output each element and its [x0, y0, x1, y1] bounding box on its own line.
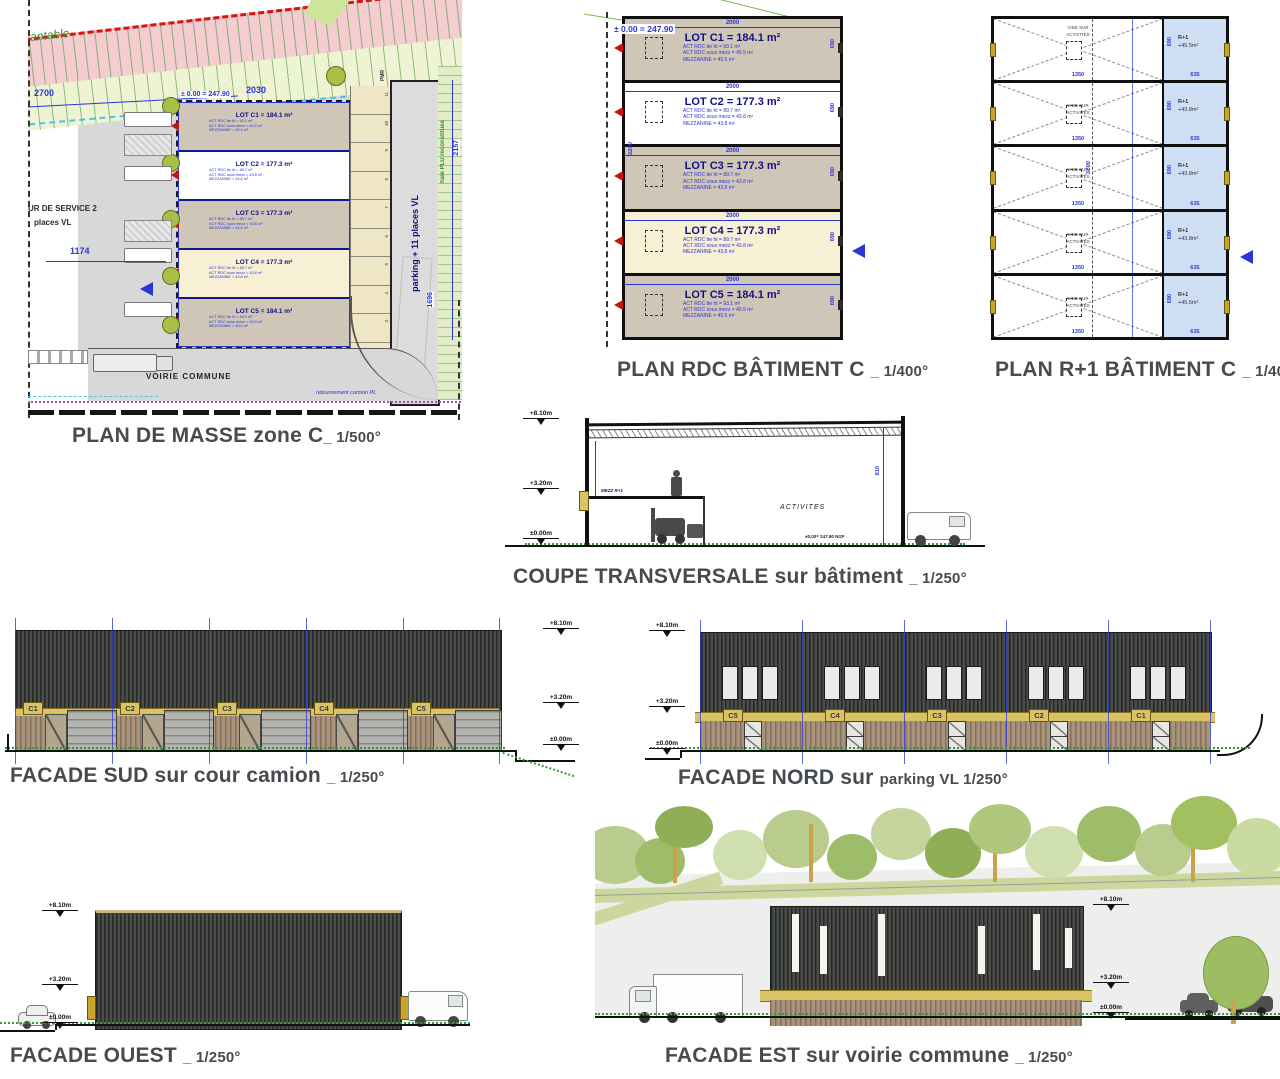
tree-icon: [827, 834, 877, 880]
unit-label: C4: [314, 702, 334, 715]
window-pane: [742, 666, 758, 700]
mezzanine-zone: 690 R+1 +45.5m² 635: [1162, 19, 1226, 80]
r1-tag: R+1: [1178, 292, 1188, 298]
facade-ouest-panel: +8.10m +3.20m ±0.00m: [0, 878, 480, 1058]
level-label: ±0.00m: [656, 740, 678, 747]
void-label1: VIDE SUR: [994, 232, 1162, 237]
window-slot: [878, 914, 885, 976]
tree-icon: [1077, 806, 1141, 862]
window-group: [824, 666, 880, 700]
window-pane: [864, 666, 880, 700]
r1-area: +45.5m²: [1178, 43, 1198, 49]
lot-line: MEZZANINE = 43.8 m²: [209, 177, 349, 182]
door-arrow-icon: [171, 121, 179, 131]
door-mark: [1224, 300, 1230, 314]
plan-de-masse-panel: antable 2700 2030 ± 0.00 = 247.90 LOT C1…: [28, 0, 462, 420]
lot-line: MEZZANINE = 45.5 m²: [209, 128, 349, 133]
masse-lot-c4: LOT C4 = 177.3 m² ACT RDC tte ht = 89.7 …: [179, 248, 349, 297]
level-triangle-icon: [56, 985, 64, 991]
level-triangle-icon: [557, 629, 565, 635]
level-label: +3.20m: [530, 480, 552, 487]
unit-label: C1: [1131, 709, 1151, 722]
door-mark: [990, 107, 996, 121]
level-marker: ±0.00m: [543, 736, 579, 751]
dim-1174: 1174: [70, 246, 90, 256]
title-scale: _ 1/500°: [323, 429, 381, 446]
direction-arrow-icon: [852, 244, 865, 258]
lot-line: MEZZANINE = 43.8 m²: [209, 275, 349, 280]
sud-cladding: [15, 630, 502, 712]
level-label: +8.10m: [550, 620, 572, 627]
void-zone: VIDE SUR ACTIVITES 1350: [994, 19, 1162, 80]
height-dim-line: [883, 428, 884, 545]
ground-line: [5, 750, 515, 752]
title-text: FACADE SUD sur cour camion: [10, 764, 327, 787]
title-scale: parking VL 1/250°: [880, 771, 1008, 788]
title-text: PLAN R+1 BÂTIMENT C: [995, 358, 1242, 381]
stall: 10: [351, 115, 391, 144]
truck-window: [635, 990, 651, 1002]
wall-mark: [838, 43, 843, 53]
tree-icon: [326, 66, 346, 86]
title-scale: _ 1/250°: [909, 570, 967, 587]
window-pane: [1130, 666, 1146, 700]
level-triangle-icon: [56, 911, 64, 917]
tree-icon: [1227, 818, 1280, 876]
level-marker: +8.10m: [543, 620, 579, 635]
ground-green-line: [595, 1013, 1280, 1015]
opening-box: [1066, 41, 1082, 60]
van-wheel: [915, 535, 926, 546]
mezzanine-zone: 690 R+1 +43.8m² 635: [1162, 212, 1226, 273]
car-roof: [1187, 993, 1209, 1002]
stall: 7: [351, 200, 391, 229]
unit-label: C1: [23, 702, 43, 715]
void-label2: ACTIVITES: [994, 239, 1162, 244]
dim-2030: 2030: [246, 85, 266, 95]
lot-name: LOT C2 = 177.3 m²: [179, 161, 349, 168]
window-group: [926, 666, 982, 700]
wall-mark: [838, 236, 843, 246]
forklift-wheel: [657, 534, 667, 544]
mezz-label: MEZZ R+1: [601, 488, 623, 493]
mezzanine-zone: 690 R+1 +45.5m² 635: [1162, 276, 1226, 337]
utility-dotted-line: [28, 401, 462, 403]
stall: 6: [351, 229, 391, 258]
door-mark: [990, 43, 996, 57]
coupe-title: COUPE TRANSVERSALE sur bâtiment _ 1/250°: [513, 565, 967, 589]
door-swing: [645, 230, 663, 252]
window-pane: [926, 666, 942, 700]
level-triangle-icon: [537, 539, 545, 545]
hatched-stall: [124, 134, 172, 156]
level-label: +8.10m: [1100, 896, 1122, 903]
level-marker: +8.10m: [1093, 896, 1129, 911]
wall-right: [901, 416, 905, 546]
void-label2: ACTIVITES: [994, 303, 1162, 308]
person-head: [673, 470, 680, 477]
bay-height-dim: 690: [1167, 101, 1173, 110]
level-triangle-icon: [663, 749, 671, 755]
crosswalk: [28, 350, 88, 364]
level-triangle-icon: [1107, 1013, 1115, 1019]
level-marker: ±0.00m: [523, 530, 559, 545]
void-label1: VIDE SUR: [994, 103, 1162, 108]
grid-line: [209, 618, 210, 764]
level-marker: +8.10m: [42, 902, 78, 917]
service-court-label2: places VL: [34, 218, 71, 227]
rdc-lot-c5: 2000 LOT C5 = 184.1 m² ACT RDC tte ht = …: [625, 273, 840, 337]
tree-icon: [871, 808, 931, 860]
road-band: [1125, 1016, 1280, 1020]
coupe-panel: MEZZ R+1 ACTIVITES 810 ±0.00= 247.90 NGF…: [505, 396, 985, 564]
ground-curve: [1217, 714, 1263, 756]
door-swing: [645, 37, 663, 59]
level-triangle-icon: [1107, 983, 1115, 989]
stall-number: 10: [384, 121, 389, 126]
window-group: [722, 666, 778, 700]
lot-line: MEZZANINE = 43.8 m²: [209, 226, 349, 231]
grid-line: [403, 618, 404, 764]
tree-icon: [969, 804, 1031, 854]
stall: 8: [351, 172, 391, 201]
stall-number: 7: [384, 206, 389, 209]
window-slot: [820, 926, 827, 974]
direction-arrow-icon: [140, 282, 153, 296]
void-zone: VIDE SUR ACTIVITES 1350: [994, 276, 1162, 337]
grid-line: [112, 618, 113, 764]
grid-line: [904, 620, 905, 764]
level-label: +3.20m: [1100, 974, 1122, 981]
title-text: FACADE EST sur voirie commune: [665, 1044, 1015, 1067]
r1-dim: 635: [1164, 329, 1226, 335]
void-label1: VIDE SUR: [994, 25, 1162, 30]
title-scale: _ 1/400°: [871, 363, 929, 380]
level-label: +3.20m: [49, 976, 71, 983]
door-mark: [990, 236, 996, 250]
voirie-label: VOIRIE COMMUNE: [146, 372, 232, 381]
service-court-label: UR DE SERVICE 2: [28, 204, 97, 213]
door-arrow-icon: [614, 43, 623, 53]
window-group: [1028, 666, 1084, 700]
plan-rdc-panel: ± 0.00 = 247.90 3200 2000 LOT C1 = 184.1…: [598, 12, 888, 357]
ouest-cladding: [95, 910, 402, 1030]
site-boundary-right: [458, 300, 460, 420]
edge-post: [7, 734, 9, 750]
level-marker: +8.10m: [523, 410, 559, 425]
r1-dim: 635: [1164, 201, 1226, 207]
door-swing: [645, 294, 663, 316]
dim-2157: 2157: [453, 140, 460, 156]
plan-r1-panel: VIDE SUR ACTIVITES 1350 690 R+1 +45.5m² …: [985, 12, 1280, 357]
ground-green-line: [525, 543, 965, 545]
door-arrow-icon: [614, 171, 623, 181]
level-label: ±0.00m: [530, 530, 552, 537]
void-label2: ACTIVITES: [994, 32, 1162, 37]
tree-icon: [162, 267, 180, 285]
r1-bay-5: VIDE SUR ACTIVITES 1350 690 R+1 +45.5m² …: [994, 273, 1226, 337]
void-zone: VIDE SUR ACTIVITES 1350: [994, 212, 1162, 273]
level-marker: ±0.00m: [42, 1014, 78, 1029]
lot-height-dim: 690: [830, 103, 836, 112]
void-label1: VIDE SUR: [994, 167, 1162, 172]
hatched-stall: [124, 220, 172, 242]
level-triangle-icon: [557, 745, 565, 751]
direction-arrow-icon: [1240, 250, 1253, 264]
lot-name: LOT C1 = 184.1 m²: [179, 112, 349, 119]
wall-mark: [838, 107, 843, 117]
title-text: PLAN DE MASSE zone C: [72, 424, 323, 447]
r1-dim: 635: [1164, 72, 1226, 78]
sectional-door: [261, 710, 311, 752]
door-arrow-icon: [614, 236, 623, 246]
r1-tag: R+1: [1178, 163, 1188, 169]
door-swing: [645, 165, 663, 187]
void-dim: 1350: [994, 265, 1162, 271]
void-zone: 3200 VIDE SUR ACTIVITES 1350: [994, 147, 1162, 208]
tree-icon: [655, 806, 713, 848]
ground-line: [595, 1016, 1125, 1018]
r1-building: VIDE SUR ACTIVITES 1350 690 R+1 +45.5m² …: [991, 16, 1229, 340]
title-scale: _ 1/250°: [183, 1049, 241, 1066]
unit-label: C2: [120, 702, 140, 715]
level-marker: ±0.00m: [649, 740, 685, 755]
window-pane: [722, 666, 738, 700]
level-marker: +8.10m: [649, 622, 685, 637]
level-triangle-icon: [537, 419, 545, 425]
masse-title: PLAN DE MASSE zone C_ 1/500°: [72, 424, 381, 448]
tree-icon: [1025, 826, 1083, 878]
truck-stall: [124, 112, 172, 127]
sud-title: FACADE SUD sur cour camion _ 1/250°: [10, 764, 385, 788]
lot-line: MEZZANINE = 45.5 m²: [209, 324, 349, 329]
pallet-stack: [687, 524, 703, 538]
network-line: [28, 396, 158, 397]
level-label: +8.10m: [656, 622, 678, 629]
rdc-building: 2000 LOT C1 = 184.1 m² ACT RDC tte ht = …: [622, 16, 843, 340]
lot-name: LOT C4 = 177.3 m²: [179, 259, 349, 266]
level-marker: +3.20m: [523, 480, 559, 495]
mezz-dim-line: [595, 441, 596, 496]
unit-label: C5: [723, 709, 743, 722]
stall-number: 5: [384, 263, 389, 266]
window-slot: [792, 914, 799, 972]
void-dim: 1350: [994, 329, 1162, 335]
window-pane: [1068, 666, 1084, 700]
ground-green-line: [5, 747, 505, 749]
r1-bay-4: VIDE SUR ACTIVITES 1350 690 R+1 +43.8m² …: [994, 209, 1226, 273]
void-dim: 1350: [994, 201, 1162, 207]
truck-stall: [124, 166, 172, 181]
unit-label: C3: [217, 702, 237, 715]
rdc-lot-c3: 2000 LOT C3 = 177.3 m² ACT RDC tte ht = …: [625, 144, 840, 208]
door-pane: [1153, 722, 1169, 737]
door-mark: [1224, 236, 1230, 250]
level-marker: +3.20m: [543, 694, 579, 709]
door-pane: [1051, 722, 1067, 737]
level-note: ± 0.00 = 247.90: [180, 91, 231, 98]
r1-area: +43.8m²: [1178, 171, 1198, 177]
level-triangle-icon: [1107, 905, 1115, 911]
sectional-door: [455, 710, 502, 752]
door-swing: [645, 101, 663, 123]
facade-sud-panel: C1 C2 C3 C4 C5 +8.10m +3.20m ±0.00m: [5, 618, 580, 778]
masse-building: LOT C1 = 184.1 m² ACT RDC tte ht = 93.1 …: [178, 102, 350, 347]
lot-line: MEZZANINE = 43.8 m²: [683, 249, 840, 255]
tree-icon: [763, 810, 829, 868]
masse-lot-c1: LOT C1 = 184.1 m² ACT RDC tte ht = 93.1 …: [179, 103, 349, 150]
window-group: [1130, 666, 1186, 700]
lot-width-dim: 2000: [625, 83, 840, 91]
r1-tag: R+1: [1178, 99, 1188, 105]
lot-width-dim: 2000: [625, 212, 840, 220]
stall-number: 4: [384, 292, 389, 295]
door-arrow-icon: [614, 107, 623, 117]
stall-number: 9: [384, 149, 389, 152]
r1-bay-2: VIDE SUR ACTIVITES 1350 690 R+1 +43.8m² …: [994, 80, 1226, 144]
tree-trunk: [809, 824, 813, 882]
ground-line: [55, 1024, 470, 1026]
window-pane: [1048, 666, 1064, 700]
r1-area: +45.5m²: [1178, 300, 1198, 306]
grid-line: [499, 618, 500, 764]
lot-height-dim: 690: [830, 167, 836, 176]
grid-line: [1108, 620, 1109, 764]
person-body: [671, 477, 682, 496]
hedge-label: haie PLU reconstituée: [440, 120, 446, 183]
window-pane: [762, 666, 778, 700]
level-marker: +3.20m: [1093, 974, 1129, 989]
ground-line: [680, 750, 1220, 752]
window-pane: [1150, 666, 1166, 700]
sectional-door: [358, 710, 408, 752]
r1-bay-3: 3200 VIDE SUR ACTIVITES 1350 690 R+1 +43…: [994, 144, 1226, 208]
level-triangle-icon: [537, 489, 545, 495]
section-cut-line: [606, 12, 608, 347]
title-scale: _ 1/250°: [1015, 1049, 1073, 1066]
level-label: ±0.00m: [550, 736, 572, 743]
stall: 11: [351, 86, 391, 115]
unit-label: C3: [927, 709, 947, 722]
stall-number: 8: [384, 178, 389, 181]
door-mark: [990, 300, 996, 314]
r1-dim: 635: [1164, 136, 1226, 142]
truck-trailer: [653, 974, 743, 1018]
mezzanine-zone: 690 R+1 +43.8m² 635: [1162, 147, 1226, 208]
level-label: ±0.00m: [49, 1014, 71, 1021]
grid-line: [802, 620, 803, 764]
r1-dim: 635: [1164, 265, 1226, 271]
void-dim: 1350: [994, 72, 1162, 78]
window-slot: [978, 926, 985, 974]
mezz-floor: [589, 496, 705, 499]
title-text: PLAN RDC BÂTIMENT C: [617, 358, 871, 381]
lot-line: MEZZANINE = 45.5 m²: [683, 313, 840, 319]
r1-tag: R+1: [1178, 228, 1188, 234]
stall: 5: [351, 257, 391, 286]
level-note: ± 0.00 = 247.90: [612, 24, 675, 34]
void-label2: ACTIVITES: [994, 174, 1162, 179]
height-dim: 810: [875, 466, 881, 475]
dim-2700: 2700: [34, 88, 54, 98]
title-scale: _ 1/250°: [327, 769, 385, 786]
truck-trailer: [93, 354, 157, 372]
lot-width-dim: 2000: [625, 147, 840, 155]
tree-icon: [1203, 936, 1269, 1010]
level-triangle-icon: [557, 703, 565, 709]
door-arrow-icon: [614, 300, 623, 310]
unit-label: C4: [825, 709, 845, 722]
stall: 9: [351, 143, 391, 172]
level-marker: +3.20m: [42, 976, 78, 991]
bay-height-dim: 690: [1167, 294, 1173, 303]
activities-label: ACTIVITES: [780, 504, 825, 511]
bay-height-dim: 690: [1167, 37, 1173, 46]
grid-line: [700, 620, 701, 764]
tree-icon: [162, 316, 180, 334]
title-text: FACADE OUEST: [10, 1044, 183, 1067]
van-window: [949, 516, 965, 527]
dim-line: [46, 261, 166, 262]
window-slot: [1065, 928, 1072, 968]
level-triangle-icon: [56, 1023, 64, 1029]
window-pane: [966, 666, 982, 700]
title-text: COUPE TRANSVERSALE sur bâtiment: [513, 565, 909, 588]
bay-height-dim: 690: [1167, 165, 1173, 174]
level-triangle-icon: [663, 631, 671, 637]
grid-line: [1210, 620, 1211, 764]
void-dim: 1350: [994, 136, 1162, 142]
lot-line: MEZZANINE = 43.8 m²: [683, 121, 840, 127]
stall-number: 11: [384, 92, 389, 97]
door-mark: [990, 171, 996, 185]
ground-line: [645, 758, 680, 760]
rdc-lot-c4: 2000 LOT C4 = 177.3 m² ACT RDC tte ht = …: [625, 209, 840, 273]
title-scale: _ 1/400°: [1242, 363, 1280, 380]
ouest-title: FACADE OUEST _ 1/250°: [10, 1044, 241, 1068]
door-pane: [847, 722, 863, 737]
truck-stall: [124, 302, 172, 317]
window-pane: [824, 666, 840, 700]
title-text: FACADE NORD sur: [678, 766, 880, 789]
sectional-door: [67, 710, 117, 752]
level-label: ±0.00m: [1100, 1004, 1122, 1011]
lot-width-dim: 2000: [625, 276, 840, 284]
window-slot: [1033, 914, 1040, 970]
ground-line: [505, 545, 985, 547]
unit-label: C2: [1029, 709, 1049, 722]
truck-cab: [156, 356, 173, 371]
window-pane: [946, 666, 962, 700]
corner-post: [87, 996, 96, 1020]
pmr-label: PMR: [380, 70, 386, 81]
tree-icon: [713, 830, 767, 880]
sectional-door: [164, 710, 214, 752]
site-boundary-bottom: [28, 410, 462, 415]
mezz-edge: [703, 496, 705, 545]
roof-line: [585, 421, 905, 427]
level-marker: +3.20m: [649, 698, 685, 713]
grid-line: [306, 618, 307, 764]
lot-height-dim: 690: [830, 39, 836, 48]
level-marker: ±0.00m: [1093, 1004, 1129, 1019]
level-label: +8.10m: [49, 902, 71, 909]
facade-nord-panel: C5 C4 C3 C2 C1 +8.10m +3.20m ±0.00m: [645, 616, 1275, 781]
drawing-sheet: antable 2700 2030 ± 0.00 = 247.90 LOT C1…: [0, 0, 1280, 1079]
lot-name: LOT C5 = 184.1 m²: [179, 308, 349, 315]
void-zone: VIDE SUR ACTIVITES 1350: [994, 83, 1162, 144]
masse-lot-c5: LOT C5 = 184.1 m² ACT RDC tte ht = 93.1 …: [179, 297, 349, 346]
